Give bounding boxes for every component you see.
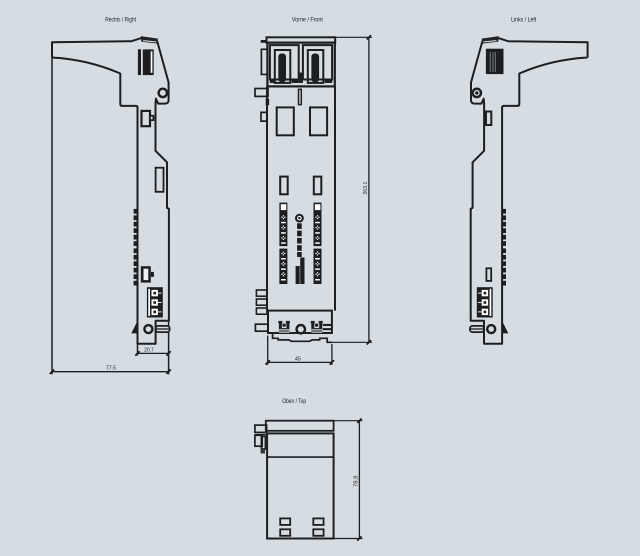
svg-text:263.1: 263.1 xyxy=(363,182,369,195)
svg-text:78.9: 78.9 xyxy=(353,476,359,488)
svg-text:20.7: 20.7 xyxy=(144,347,153,353)
svg-text:Rechts / Right: Rechts / Right xyxy=(105,17,136,24)
svg-text:45: 45 xyxy=(295,356,301,362)
svg-text:Links / Left: Links / Left xyxy=(511,17,536,24)
svg-text:77.5: 77.5 xyxy=(106,366,116,372)
svg-text:Vorne / Front: Vorne / Front xyxy=(292,17,323,24)
svg-text:Oben / Top: Oben / Top xyxy=(282,398,306,405)
